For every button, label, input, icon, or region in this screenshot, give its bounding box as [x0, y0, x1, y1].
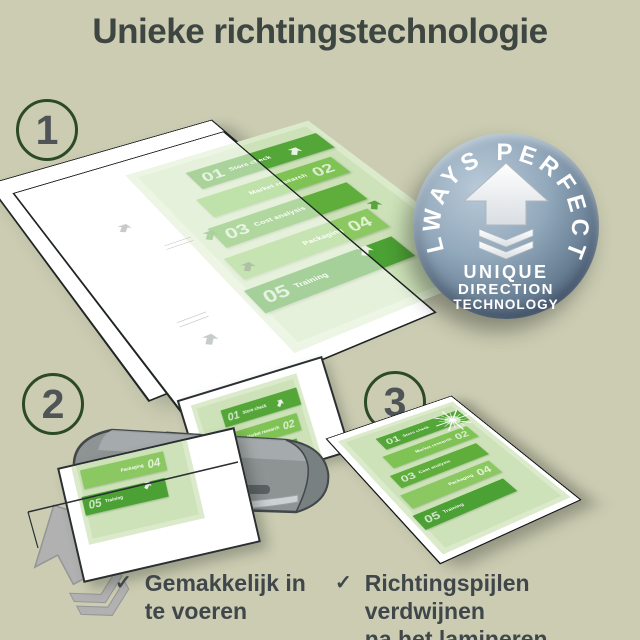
band-label: Packaging	[447, 474, 475, 487]
benefit-easy-feed: ✓ Gemakkelijk in te voeren	[115, 569, 306, 625]
checkmark-icon: ✓	[335, 569, 352, 640]
band-number: 05	[87, 497, 102, 511]
pouch-watermark-arrow-icon	[116, 223, 134, 232]
band-label: Market research	[414, 438, 453, 454]
band-number: 04	[473, 465, 494, 478]
band-label: Training	[442, 502, 465, 514]
band-number: 04	[342, 215, 377, 234]
pouch-watermark-arrow-icon	[200, 333, 219, 345]
benefit-line-2: na het lamineren	[365, 626, 548, 640]
badge-line-technology: TECHNOLOGY	[453, 297, 558, 312]
band-number: 02	[307, 162, 339, 178]
illustration-page: Unieke richtingstechnologie 1 2 3 Launch…	[0, 0, 640, 640]
benefit-text: Gemakkelijk in te voeren	[145, 569, 306, 625]
badge-line-direction: DIRECTION	[458, 281, 554, 298]
band-number: 01	[383, 435, 403, 446]
laminated-sheet: Launch 01 Store check 02 Market research	[325, 396, 581, 565]
band-label: Store check	[402, 426, 431, 438]
page-title: Unieke richtingstechnologie	[0, 12, 640, 52]
band-label: Packaging	[120, 463, 144, 473]
step-3-scene: Launch 01 Store check 02 Market research	[320, 393, 589, 570]
band-label: Cost analysis	[418, 459, 452, 474]
badge-line-unique: UNIQUE	[463, 262, 548, 282]
pouch-watermark-text	[164, 237, 193, 250]
band-number: 05	[421, 510, 444, 525]
up-arrow-icon	[464, 163, 548, 259]
badge-graphic: ALWAYS PERFECT! UNIQUE DIRECTION TECHNOL…	[413, 133, 599, 319]
benefit-text: Richtingspijlen verdwijnen na het lamine…	[365, 569, 640, 640]
pouch-watermark-text	[177, 312, 209, 328]
checkmark-icon: ✓	[115, 569, 132, 625]
band-number: 04	[146, 456, 161, 470]
benefit-line-2: te voeren	[145, 598, 247, 624]
benefit-line-1: Gemakkelijk in	[145, 570, 306, 596]
pouch-watermark-arrow-icon	[239, 261, 256, 271]
benefit-arrows-disappear: ✓ Richtingspijlen verdwijnen na het lami…	[335, 569, 640, 640]
band-number: 03	[397, 471, 418, 484]
benefit-line-1: Richtingspijlen verdwijnen	[365, 570, 530, 624]
band-label: Training	[105, 495, 124, 504]
always-perfect-badge: ALWAYS PERFECT! UNIQUE DIRECTION TECHNOL…	[413, 133, 599, 319]
